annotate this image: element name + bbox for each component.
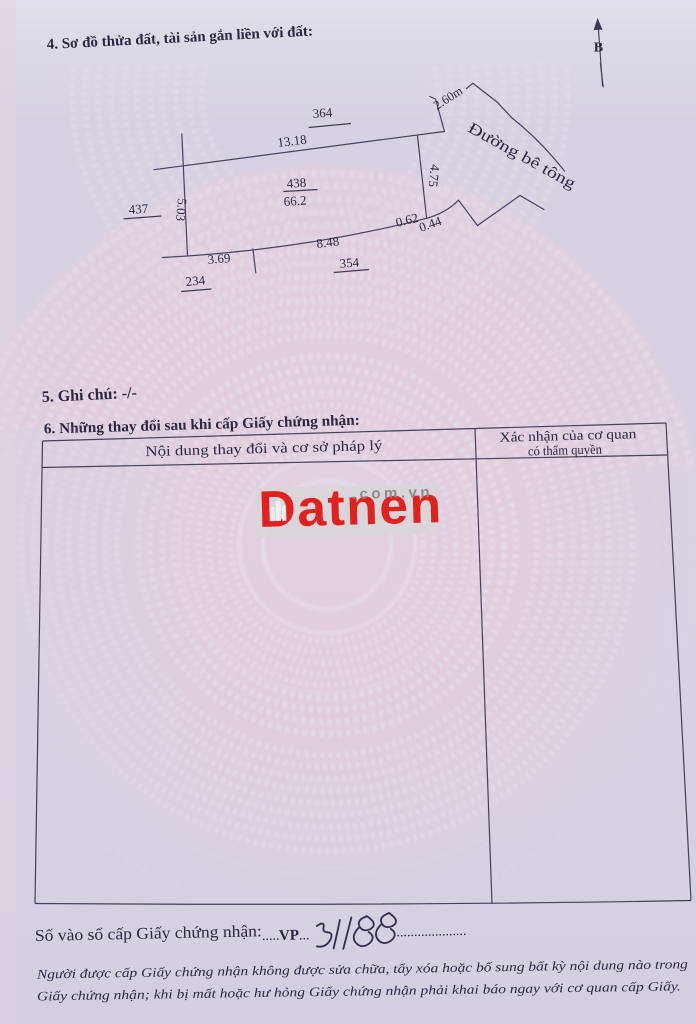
svg-text:4.75: 4.75 (426, 164, 443, 188)
svg-text:354: 354 (339, 254, 360, 271)
svg-text:5.03: 5.03 (173, 198, 190, 222)
svg-text:.com.vn: .com.vn (352, 484, 434, 503)
svg-text:3.69: 3.69 (207, 250, 231, 267)
svg-text:234: 234 (185, 272, 206, 289)
svg-text:.....: ..... (262, 929, 280, 944)
svg-text:438: 438 (286, 175, 306, 191)
svg-text:.....................: ..................... (393, 924, 467, 941)
svg-text:437: 437 (128, 201, 149, 217)
svg-text:66.2: 66.2 (283, 192, 307, 209)
svg-text:8.48: 8.48 (316, 233, 340, 251)
svg-text:...: ... (299, 928, 310, 943)
svg-text:364: 364 (312, 105, 333, 121)
svg-text:VP: VP (279, 928, 299, 944)
svg-text:B: B (594, 41, 603, 56)
svg-text:có thẩm quyền: có thẩm quyền (528, 442, 603, 459)
